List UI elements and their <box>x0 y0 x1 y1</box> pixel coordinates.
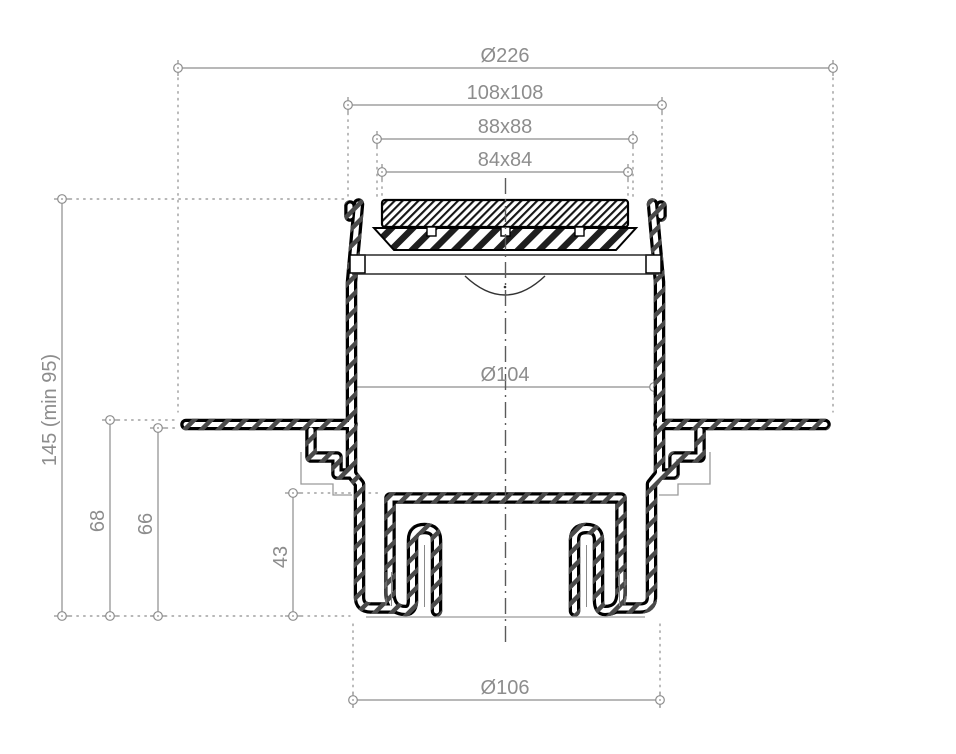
label-total-height: 145 (min 95) <box>39 354 61 466</box>
label-height-66: 66 <box>135 513 157 535</box>
drawing-sheet: Ø226 108x108 88x88 84x84 Ø104 Ø106 145 (… <box>0 0 956 754</box>
label-height-68: 68 <box>87 510 109 532</box>
label-inner-diameter: Ø104 <box>481 364 530 386</box>
label-height-43: 43 <box>270 546 292 568</box>
label-frame-size: 108x108 <box>467 82 544 104</box>
drain-body-section <box>160 185 860 655</box>
label-outer-diameter: Ø226 <box>481 45 530 67</box>
grate-notch <box>427 227 436 236</box>
arc-center-mark <box>504 286 507 289</box>
grate-notch <box>575 227 584 236</box>
label-outlet-diameter: Ø106 <box>481 677 530 699</box>
label-grate-size-84: 84x84 <box>478 149 533 171</box>
label-grate-size-88: 88x88 <box>478 116 533 138</box>
technical-drawing: Ø226 108x108 88x88 84x84 Ø104 Ø106 145 (… <box>0 0 956 754</box>
